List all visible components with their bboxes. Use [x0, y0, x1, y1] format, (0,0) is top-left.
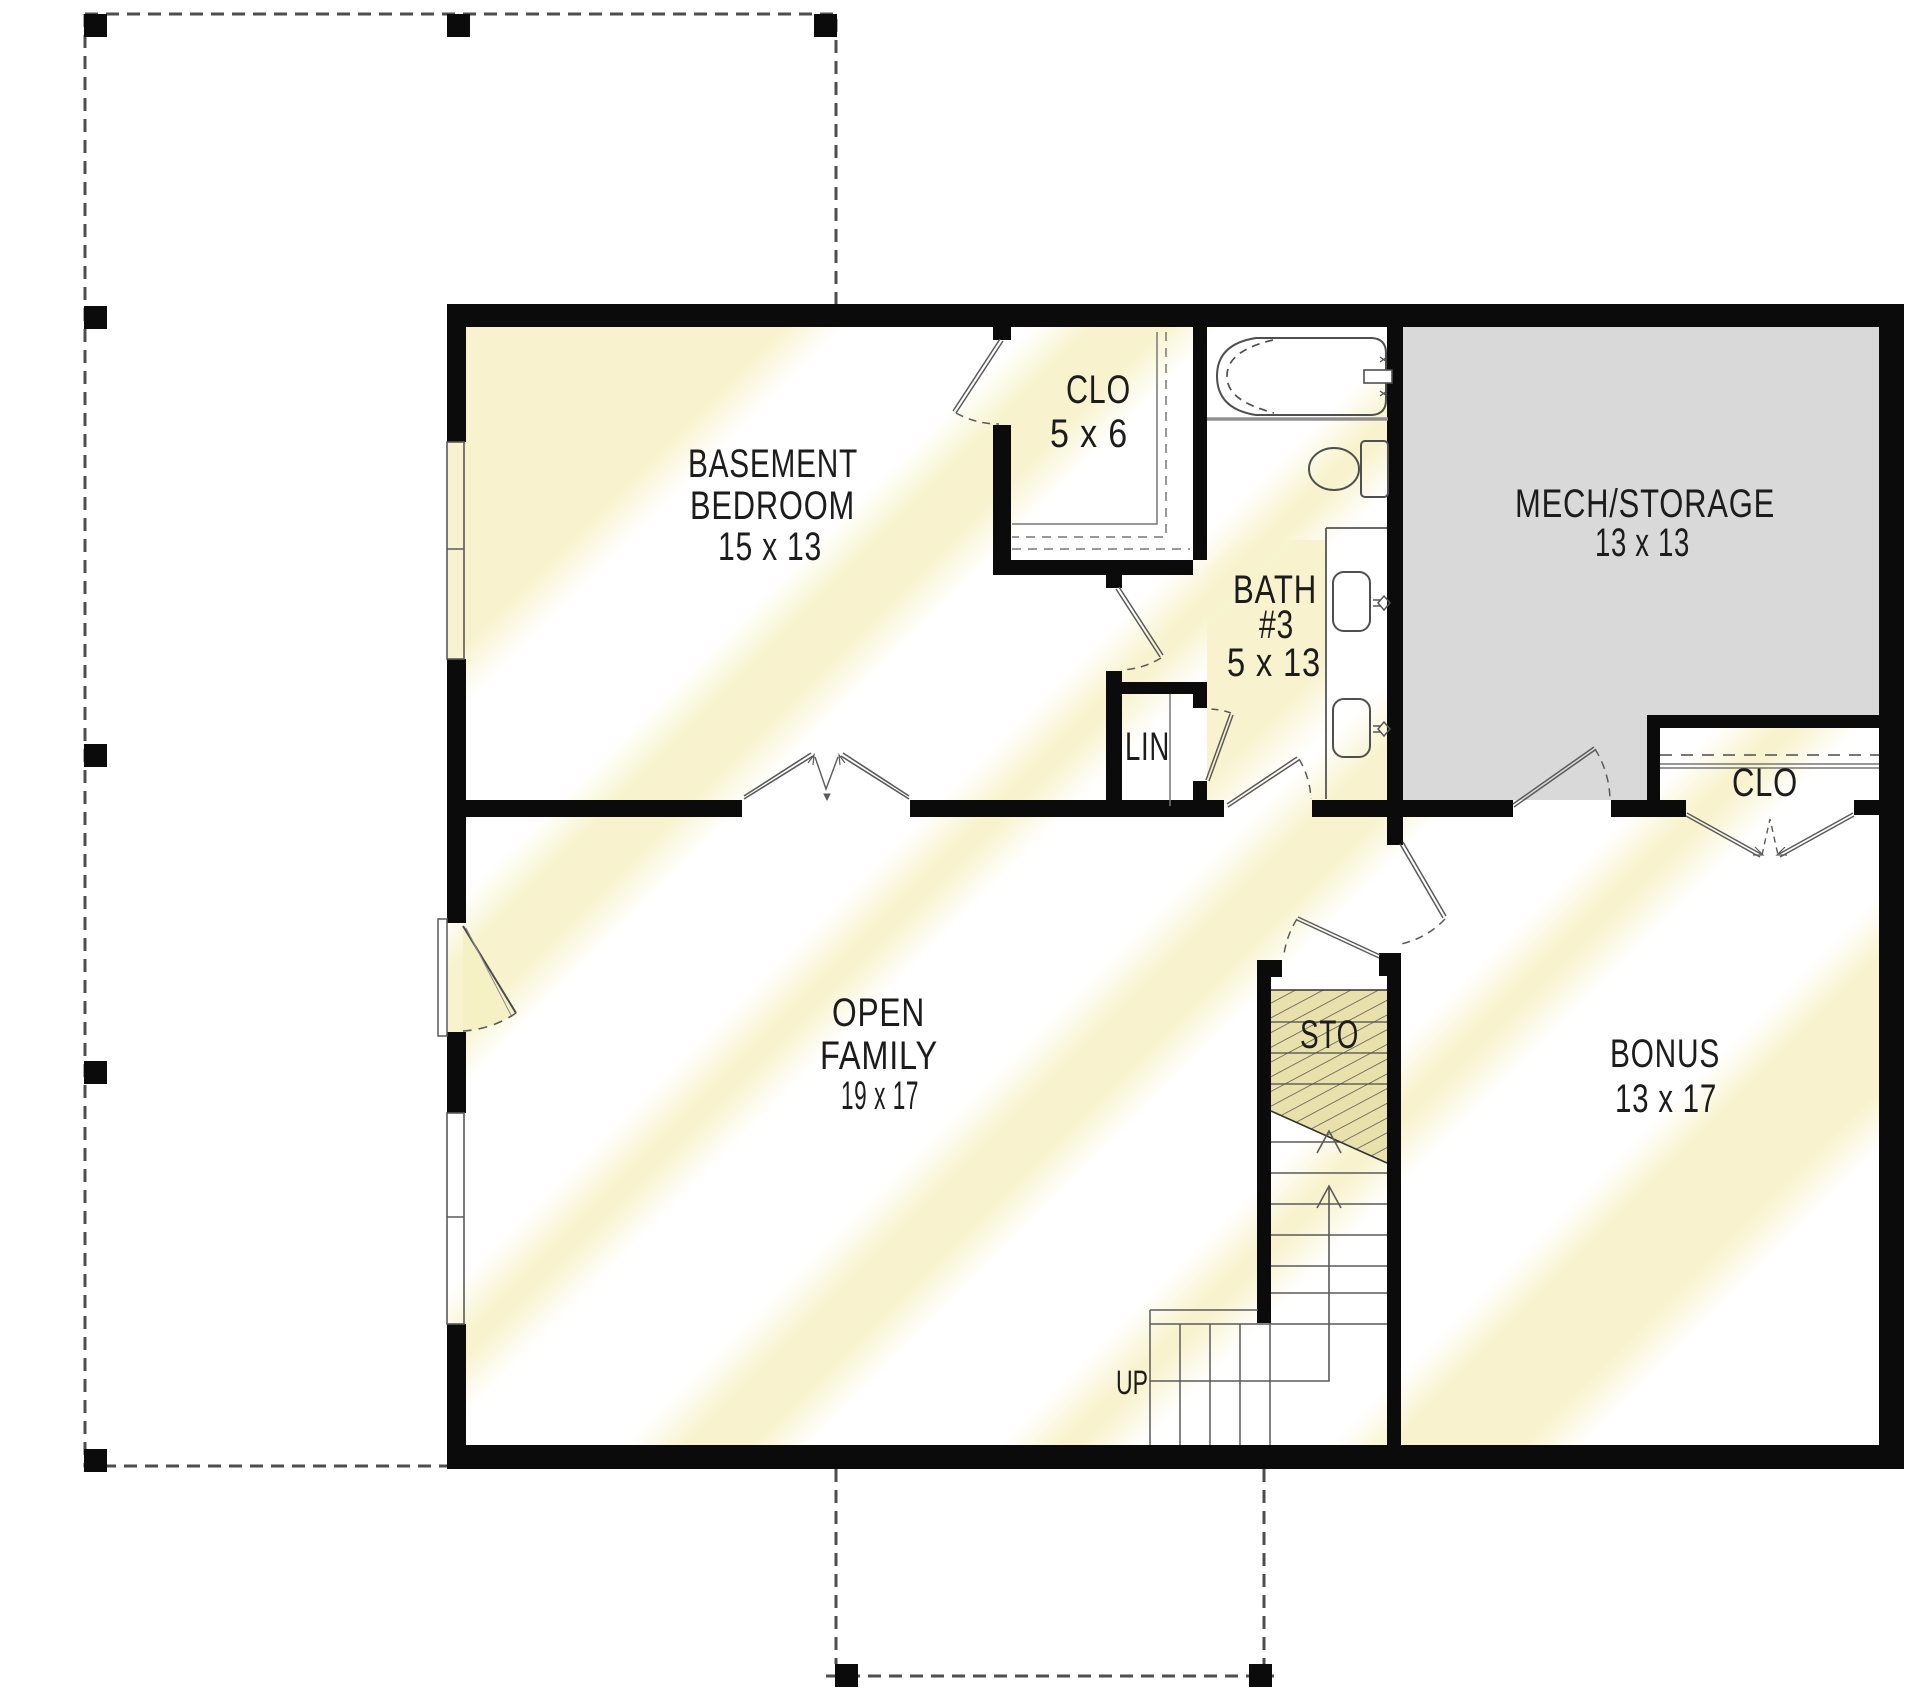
- svg-text:UP: UP: [1116, 1364, 1148, 1402]
- svg-text:LIN: LIN: [1125, 725, 1170, 769]
- svg-text:CLO: CLO: [1066, 368, 1131, 412]
- svg-text:MECH/STORAGE: MECH/STORAGE: [1515, 482, 1775, 526]
- svg-text:13 x 17: 13 x 17: [1615, 1077, 1717, 1121]
- svg-text:BEDROOM: BEDROOM: [690, 484, 855, 528]
- svg-text:CLO: CLO: [1732, 761, 1798, 805]
- svg-text:13 x 13: 13 x 13: [1595, 521, 1690, 565]
- svg-text:15 x 13: 15 x 13: [718, 525, 822, 569]
- svg-text:OPEN: OPEN: [832, 991, 925, 1035]
- svg-text:5 x 6: 5 x 6: [1050, 412, 1128, 456]
- svg-text:BASEMENT: BASEMENT: [688, 442, 858, 486]
- svg-text:19 x 17: 19 x 17: [841, 1074, 919, 1118]
- svg-text:BONUS: BONUS: [1610, 1032, 1720, 1076]
- svg-text:5 x 13: 5 x 13: [1227, 641, 1321, 685]
- svg-text:STO: STO: [1300, 1013, 1359, 1057]
- svg-text:FAMILY: FAMILY: [820, 1034, 938, 1078]
